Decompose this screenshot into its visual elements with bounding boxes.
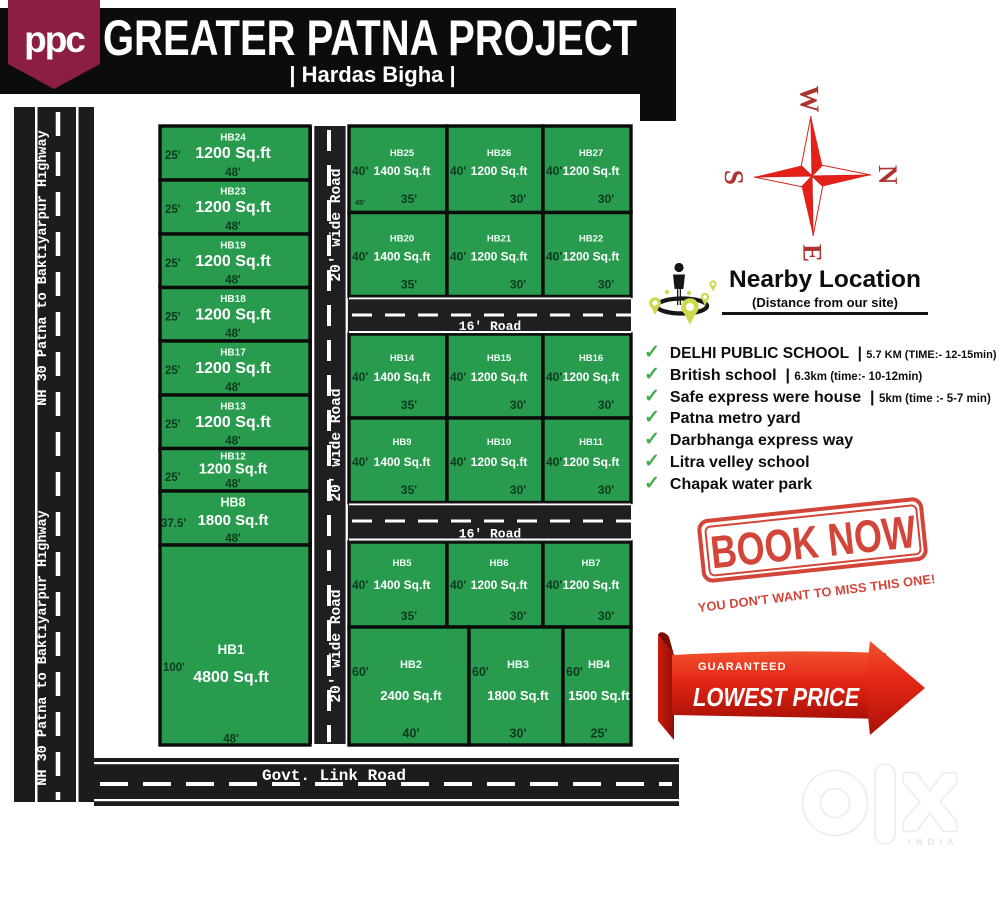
svg-text:40': 40'	[352, 250, 368, 264]
svg-text:1500 Sq.ft: 1500 Sq.ft	[568, 688, 630, 703]
svg-text:NH 30 Patna to Baktiyarpur Hig: NH 30 Patna to Baktiyarpur Highway	[36, 130, 51, 405]
svg-text:HB9: HB9	[392, 437, 411, 448]
svg-text:HB19: HB19	[220, 241, 246, 252]
svg-text:30': 30'	[510, 278, 526, 292]
svg-text:45': 45'	[355, 198, 365, 207]
svg-text:HB24: HB24	[220, 133, 246, 144]
svg-text:35': 35'	[401, 278, 417, 292]
svg-text:INDIA: INDIA	[908, 837, 959, 848]
svg-text:35': 35'	[401, 483, 417, 497]
svg-text:25': 25'	[165, 150, 181, 162]
svg-text:48': 48'	[225, 167, 241, 179]
svg-text:W: W	[794, 85, 824, 113]
svg-text:30': 30'	[510, 398, 526, 412]
svg-text:20' wide Road: 20' wide Road	[329, 589, 345, 702]
svg-text:40': 40'	[450, 578, 466, 592]
svg-text:1400 Sq.ft: 1400 Sq.ft	[374, 455, 431, 469]
svg-text:NH 30 Patna to Baktiyarpur Hig: NH 30 Patna to Baktiyarpur Highway	[36, 510, 51, 785]
svg-text:48': 48'	[225, 328, 241, 340]
svg-text:1200 Sq.ft: 1200 Sq.ft	[199, 462, 268, 478]
svg-text:1200 Sq.ft: 1200 Sq.ft	[563, 250, 620, 264]
svg-text:1200 Sq.ft: 1200 Sq.ft	[471, 370, 528, 384]
svg-text:35': 35'	[401, 609, 417, 623]
svg-text:S: S	[719, 170, 749, 186]
svg-text:1200 Sq.ft: 1200 Sq.ft	[195, 360, 271, 377]
svg-text:HB7: HB7	[581, 558, 600, 569]
svg-text:40': 40'	[403, 727, 420, 741]
svg-text:25': 25'	[165, 204, 181, 216]
svg-text:1200 Sq.ft: 1200 Sq.ft	[195, 414, 271, 431]
svg-text:16' Road: 16' Road	[459, 527, 521, 542]
svg-text:E: E	[797, 244, 827, 263]
svg-text:HB14: HB14	[390, 353, 415, 364]
svg-text:1200 Sq.ft: 1200 Sq.ft	[471, 455, 528, 469]
svg-text:HB15: HB15	[487, 353, 512, 364]
svg-text:30': 30'	[598, 278, 614, 292]
svg-text:48': 48'	[225, 221, 241, 233]
svg-text:HB23: HB23	[220, 187, 246, 198]
svg-text:HB5: HB5	[392, 558, 412, 569]
svg-text:1200 Sq.ft: 1200 Sq.ft	[563, 455, 620, 469]
svg-text:40': 40'	[450, 164, 466, 178]
svg-text:48': 48'	[225, 479, 241, 491]
svg-text:HB18: HB18	[220, 294, 246, 305]
svg-text:48': 48'	[223, 734, 239, 746]
svg-text:HB20: HB20	[390, 234, 414, 245]
svg-text:40': 40'	[450, 370, 466, 384]
svg-text:HB17: HB17	[220, 348, 246, 359]
svg-text:35': 35'	[401, 398, 417, 412]
svg-text:60': 60'	[472, 665, 489, 679]
svg-text:30': 30'	[510, 483, 526, 497]
svg-text:1200 Sq.ft: 1200 Sq.ft	[563, 370, 620, 384]
svg-text:25': 25'	[165, 419, 181, 431]
svg-text:1200 Sq.ft: 1200 Sq.ft	[471, 250, 528, 264]
svg-text:30': 30'	[598, 483, 614, 497]
svg-text:16' Road: 16' Road	[459, 319, 521, 334]
svg-text:30': 30'	[510, 609, 526, 623]
svg-text:HB2: HB2	[400, 659, 422, 671]
svg-text:HB25: HB25	[390, 148, 415, 159]
svg-text:40': 40'	[450, 455, 466, 469]
svg-text:40': 40'	[352, 578, 368, 592]
svg-text:4800 Sq.ft: 4800 Sq.ft	[193, 669, 269, 686]
svg-text:48': 48'	[225, 382, 241, 394]
svg-text:48': 48'	[225, 275, 241, 287]
svg-text:48': 48'	[225, 533, 241, 545]
svg-text:1200 Sq.ft: 1200 Sq.ft	[195, 253, 271, 270]
svg-text:37.5': 37.5'	[161, 518, 186, 530]
svg-text:1200 Sq.ft: 1200 Sq.ft	[471, 164, 528, 178]
svg-text:1200 Sq.ft: 1200 Sq.ft	[471, 578, 528, 592]
svg-text:1800 Sq.ft: 1800 Sq.ft	[487, 688, 549, 703]
svg-text:40': 40'	[352, 370, 368, 384]
svg-text:1200 Sq.ft: 1200 Sq.ft	[563, 578, 620, 592]
svg-text:HB1: HB1	[217, 642, 244, 657]
svg-text:1400 Sq.ft: 1400 Sq.ft	[374, 578, 431, 592]
svg-text:40': 40'	[352, 164, 368, 178]
svg-text:HB21: HB21	[487, 234, 512, 245]
svg-text:HB11: HB11	[579, 437, 603, 448]
svg-text:1200 Sq.ft: 1200 Sq.ft	[563, 164, 620, 178]
svg-text:HB6: HB6	[489, 558, 508, 569]
svg-text:60': 60'	[566, 665, 583, 679]
svg-text:30': 30'	[598, 192, 614, 206]
svg-text:40': 40'	[352, 455, 368, 469]
svg-text:40': 40'	[546, 370, 562, 384]
svg-text:30': 30'	[510, 727, 527, 741]
svg-text:30': 30'	[598, 609, 614, 623]
svg-text:HB3: HB3	[507, 659, 529, 671]
svg-text:1400 Sq.ft: 1400 Sq.ft	[374, 370, 431, 384]
svg-text:40': 40'	[546, 578, 562, 592]
svg-text:25': 25'	[165, 312, 181, 324]
svg-text:25': 25'	[165, 472, 181, 484]
svg-text:40': 40'	[450, 250, 466, 264]
svg-text:HB13: HB13	[220, 402, 246, 413]
svg-text:1200 Sq.ft: 1200 Sq.ft	[195, 199, 271, 216]
svg-text:48': 48'	[225, 436, 241, 448]
svg-text:1800 Sq.ft: 1800 Sq.ft	[198, 512, 269, 529]
svg-text:20' wide Road: 20' wide Road	[329, 168, 345, 281]
svg-text:HB16: HB16	[579, 353, 603, 364]
svg-text:40': 40'	[546, 455, 562, 469]
svg-text:1400 Sq.ft: 1400 Sq.ft	[374, 164, 431, 178]
svg-text:1400 Sq.ft: 1400 Sq.ft	[374, 250, 431, 264]
svg-text:HB4: HB4	[588, 659, 611, 671]
svg-text:25': 25'	[165, 365, 181, 377]
svg-text:HB27: HB27	[579, 148, 603, 159]
svg-text:60': 60'	[352, 665, 369, 679]
svg-text:25': 25'	[165, 258, 181, 270]
svg-text:2400 Sq.ft: 2400 Sq.ft	[380, 688, 442, 703]
svg-text:30': 30'	[510, 192, 526, 206]
svg-text:N: N	[873, 165, 903, 186]
svg-text:Govt. Link Road: Govt. Link Road	[262, 767, 406, 785]
svg-text:HB8: HB8	[220, 496, 245, 510]
svg-text:HB22: HB22	[579, 234, 603, 245]
svg-text:1200 Sq.ft: 1200 Sq.ft	[195, 307, 271, 324]
svg-text:HB10: HB10	[487, 437, 511, 448]
svg-text:20' wide Road: 20' wide Road	[329, 388, 345, 501]
svg-text:40': 40'	[546, 164, 562, 178]
svg-text:35': 35'	[401, 192, 417, 206]
svg-text:HB26: HB26	[487, 148, 511, 159]
svg-text:100': 100'	[163, 662, 185, 674]
svg-text:40': 40'	[546, 250, 562, 264]
svg-text:30': 30'	[598, 398, 614, 412]
svg-text:1200 Sq.ft: 1200 Sq.ft	[195, 145, 271, 162]
svg-text:25': 25'	[591, 727, 608, 741]
